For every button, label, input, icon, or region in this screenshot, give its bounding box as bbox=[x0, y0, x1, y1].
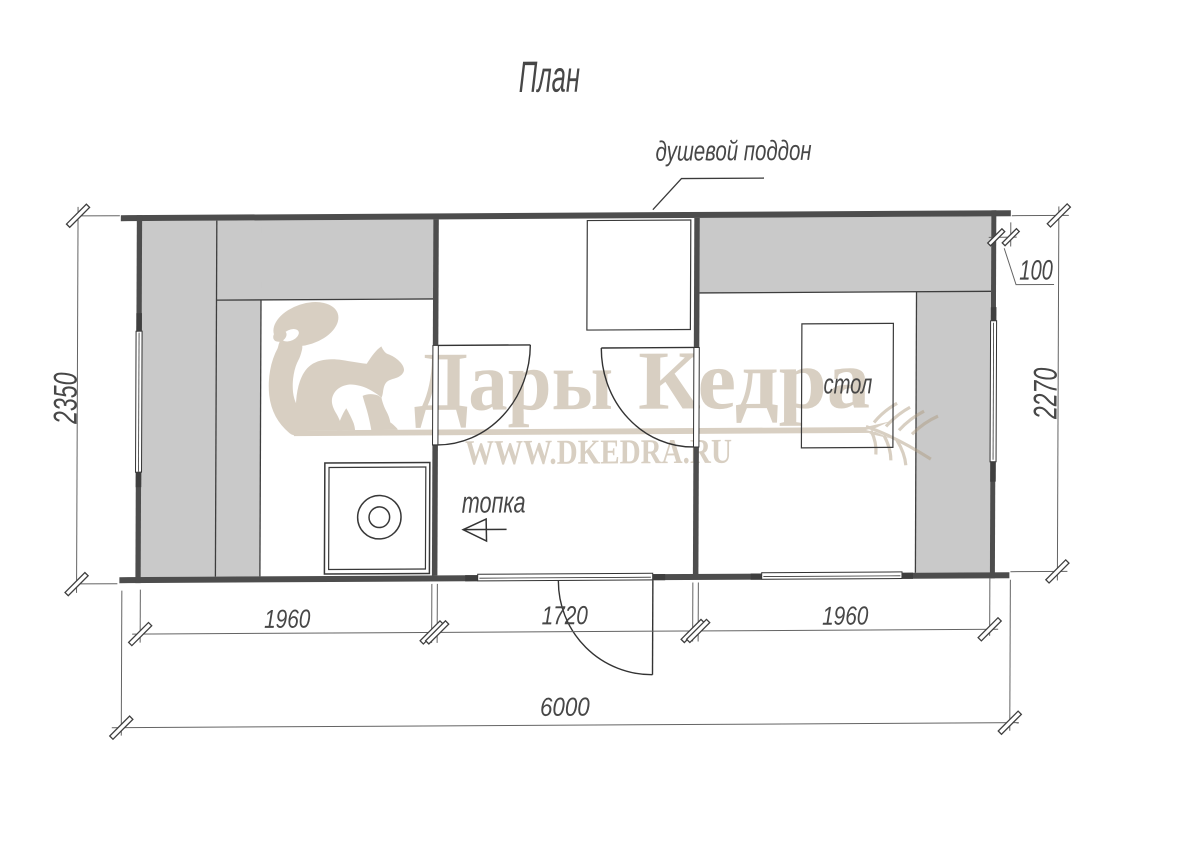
svg-text:душевой поддон: душевой поддон bbox=[656, 136, 812, 168]
svg-text:1960: 1960 bbox=[822, 601, 868, 630]
svg-text:1720: 1720 bbox=[542, 601, 588, 630]
svg-text:6000: 6000 bbox=[540, 693, 590, 722]
svg-text:2270: 2270 bbox=[1028, 367, 1065, 420]
svg-text:План: План bbox=[519, 51, 580, 101]
svg-text:2350: 2350 bbox=[48, 372, 85, 425]
svg-text:100: 100 bbox=[1019, 255, 1053, 286]
svg-text:Дары: Дары bbox=[414, 335, 613, 429]
svg-text:1960: 1960 bbox=[264, 604, 310, 633]
svg-text:WWW.DKEDRA.RU: WWW.DKEDRA.RU bbox=[465, 432, 732, 472]
svg-text:топка: топка bbox=[462, 485, 526, 520]
svg-text:стол: стол bbox=[824, 369, 873, 400]
